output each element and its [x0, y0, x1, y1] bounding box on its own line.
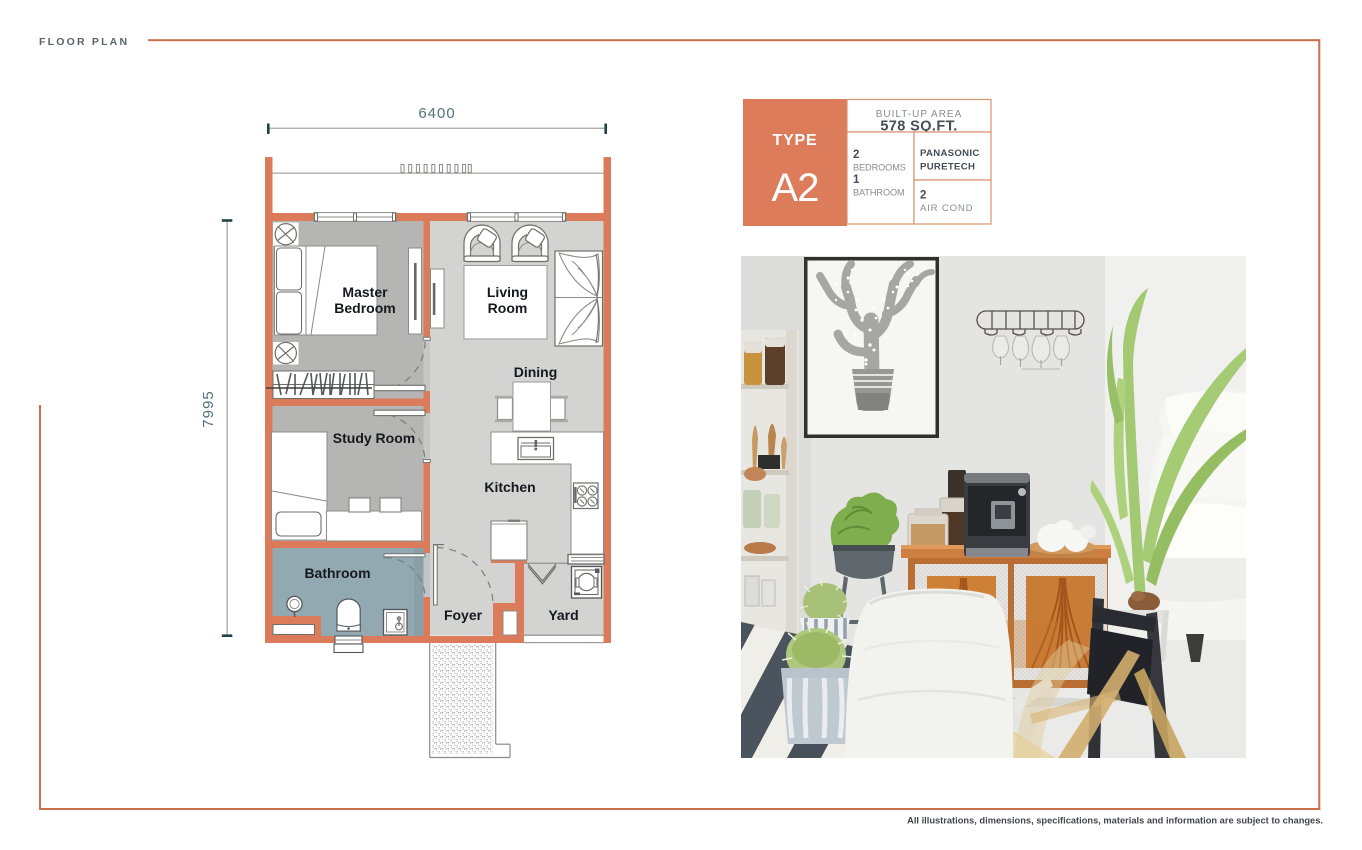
svg-text:Bathroom: Bathroom — [304, 565, 370, 581]
svg-text:FLOOR PLAN: FLOOR PLAN — [39, 36, 129, 48]
svg-text:Yard: Yard — [548, 607, 578, 623]
svg-text:Bedroom: Bedroom — [334, 300, 395, 316]
svg-text:Master: Master — [342, 284, 388, 300]
svg-text:BEDROOMS: BEDROOMS — [853, 163, 906, 173]
svg-text:Living: Living — [487, 284, 528, 300]
svg-text:A2: A2 — [772, 166, 819, 210]
svg-text:Kitchen: Kitchen — [484, 479, 535, 495]
svg-text:Study Room: Study Room — [333, 430, 415, 446]
svg-text:AIR COND: AIR COND — [920, 203, 973, 214]
svg-text:BATHROOM: BATHROOM — [853, 188, 905, 198]
svg-text:1: 1 — [853, 174, 860, 186]
svg-text:TYPE: TYPE — [773, 132, 818, 149]
svg-text:Room: Room — [488, 300, 528, 316]
svg-text:6400: 6400 — [418, 105, 455, 122]
svg-text:7995: 7995 — [200, 390, 217, 427]
svg-text:2: 2 — [920, 190, 926, 202]
svg-text:PURETECH: PURETECH — [920, 162, 975, 173]
svg-text:2: 2 — [853, 149, 859, 161]
svg-text:Foyer: Foyer — [444, 607, 483, 623]
svg-text:PANASONIC: PANASONIC — [920, 148, 980, 159]
svg-text:All illustrations, dimensions,: All illustrations, dimensions, specifica… — [907, 816, 1323, 826]
svg-text:Dining: Dining — [514, 364, 558, 380]
